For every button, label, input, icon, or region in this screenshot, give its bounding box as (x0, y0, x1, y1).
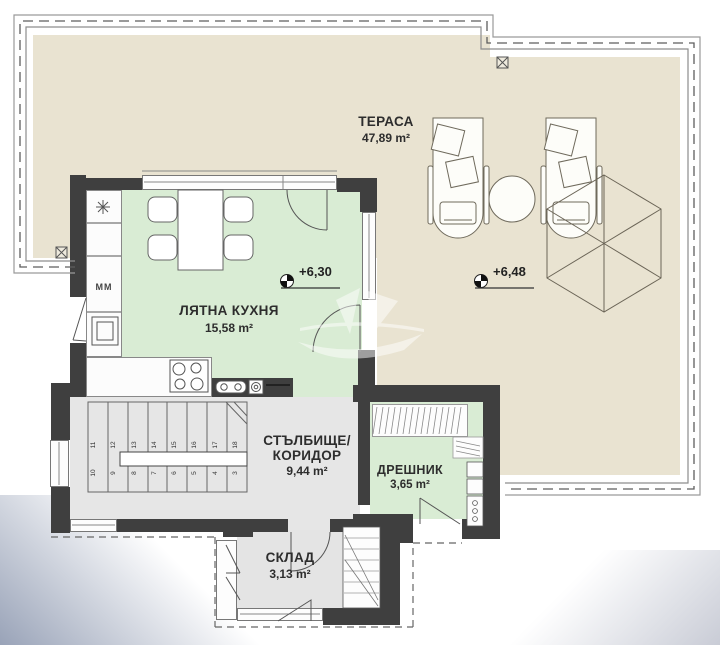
wardrobe-shelf (453, 437, 483, 458)
terrace-area: 47,89 m² (336, 132, 436, 145)
elevation-label-kitchen: +6,30 (299, 264, 332, 279)
elevation-label-terrace: +6,48 (493, 264, 526, 279)
storage-area: 3,13 m² (240, 568, 340, 581)
roof-outline (14, 15, 700, 495)
stair-number: 5 (191, 468, 205, 478)
door-arc-kitchen-top (287, 190, 327, 230)
stair-stringer (120, 452, 247, 466)
stair-number: 11 (90, 440, 104, 450)
stair-number: 3 (232, 468, 246, 478)
pillow (440, 202, 476, 224)
summer-kitchen-label: ЛЯТНА КУХНЯ (164, 304, 294, 318)
stair-number: 6 (171, 468, 185, 478)
storage-shelf-unit (343, 527, 380, 608)
stair-number: 9 (110, 468, 124, 478)
door-leaf-wardrobe (420, 498, 460, 524)
side-table (489, 176, 535, 222)
chair (148, 197, 177, 222)
dining-set (148, 190, 253, 270)
kitchen-sink-unit (92, 317, 118, 345)
floor-plan-canvas: ТЕРАСА 47,89 m² ЛЯТНА КУХНЯ 15,58 m² СТЪ… (0, 0, 720, 645)
door-leaf-west-zone (226, 545, 240, 600)
stair-number: 15 (171, 440, 185, 450)
stair-number: 18 (232, 440, 246, 450)
hanger-rail-hatch (373, 407, 461, 434)
appliance-mm-label: ММ (88, 282, 120, 292)
dining-table (178, 190, 223, 270)
chair (224, 197, 253, 222)
stair-numbers-upper: 1112131415161718 (92, 438, 244, 452)
pillow (553, 202, 589, 224)
sunbed-1 (428, 118, 489, 238)
wardrobe-label: ДРЕШНИК (364, 464, 456, 477)
stair-number: 7 (151, 468, 165, 478)
stair-number: 8 (131, 468, 145, 478)
stair-number: 4 (212, 468, 226, 478)
pillow (559, 156, 592, 187)
counter-sink-icon (216, 380, 290, 394)
stair-number: 14 (151, 440, 165, 450)
hob-star-icon (96, 200, 110, 214)
storage-label: СКЛАД (240, 551, 340, 565)
door-leaf-kitchen-left (73, 298, 86, 341)
stair-number: 12 (110, 440, 124, 450)
stair-number: 17 (212, 440, 226, 450)
terrace-label: ТЕРАСА (336, 115, 436, 129)
wardrobe-area: 3,65 m² (364, 479, 456, 491)
stair-number: 13 (131, 440, 145, 450)
stair-break-line (226, 402, 247, 424)
pillow (446, 156, 479, 187)
stair-corridor-label-2: КОРИДОР (253, 449, 361, 463)
stair-number: 16 (191, 440, 205, 450)
chair (224, 235, 253, 260)
plan-linework (0, 0, 720, 645)
summer-kitchen-area: 15,58 m² (164, 322, 294, 335)
sunbed-2 (541, 118, 602, 238)
watermark-ship (298, 288, 424, 359)
stair-number: 10 (90, 468, 104, 478)
stair-numbers-lower: 109876543 (92, 466, 244, 480)
cooktop-icon (170, 360, 208, 392)
stair-corridor-label-1: СТЪЛБИЩЕ/ (253, 434, 361, 448)
chair (148, 235, 177, 260)
door-leaf-storage-bottom (278, 600, 311, 621)
stair-corridor-area: 9,44 m² (253, 465, 361, 478)
